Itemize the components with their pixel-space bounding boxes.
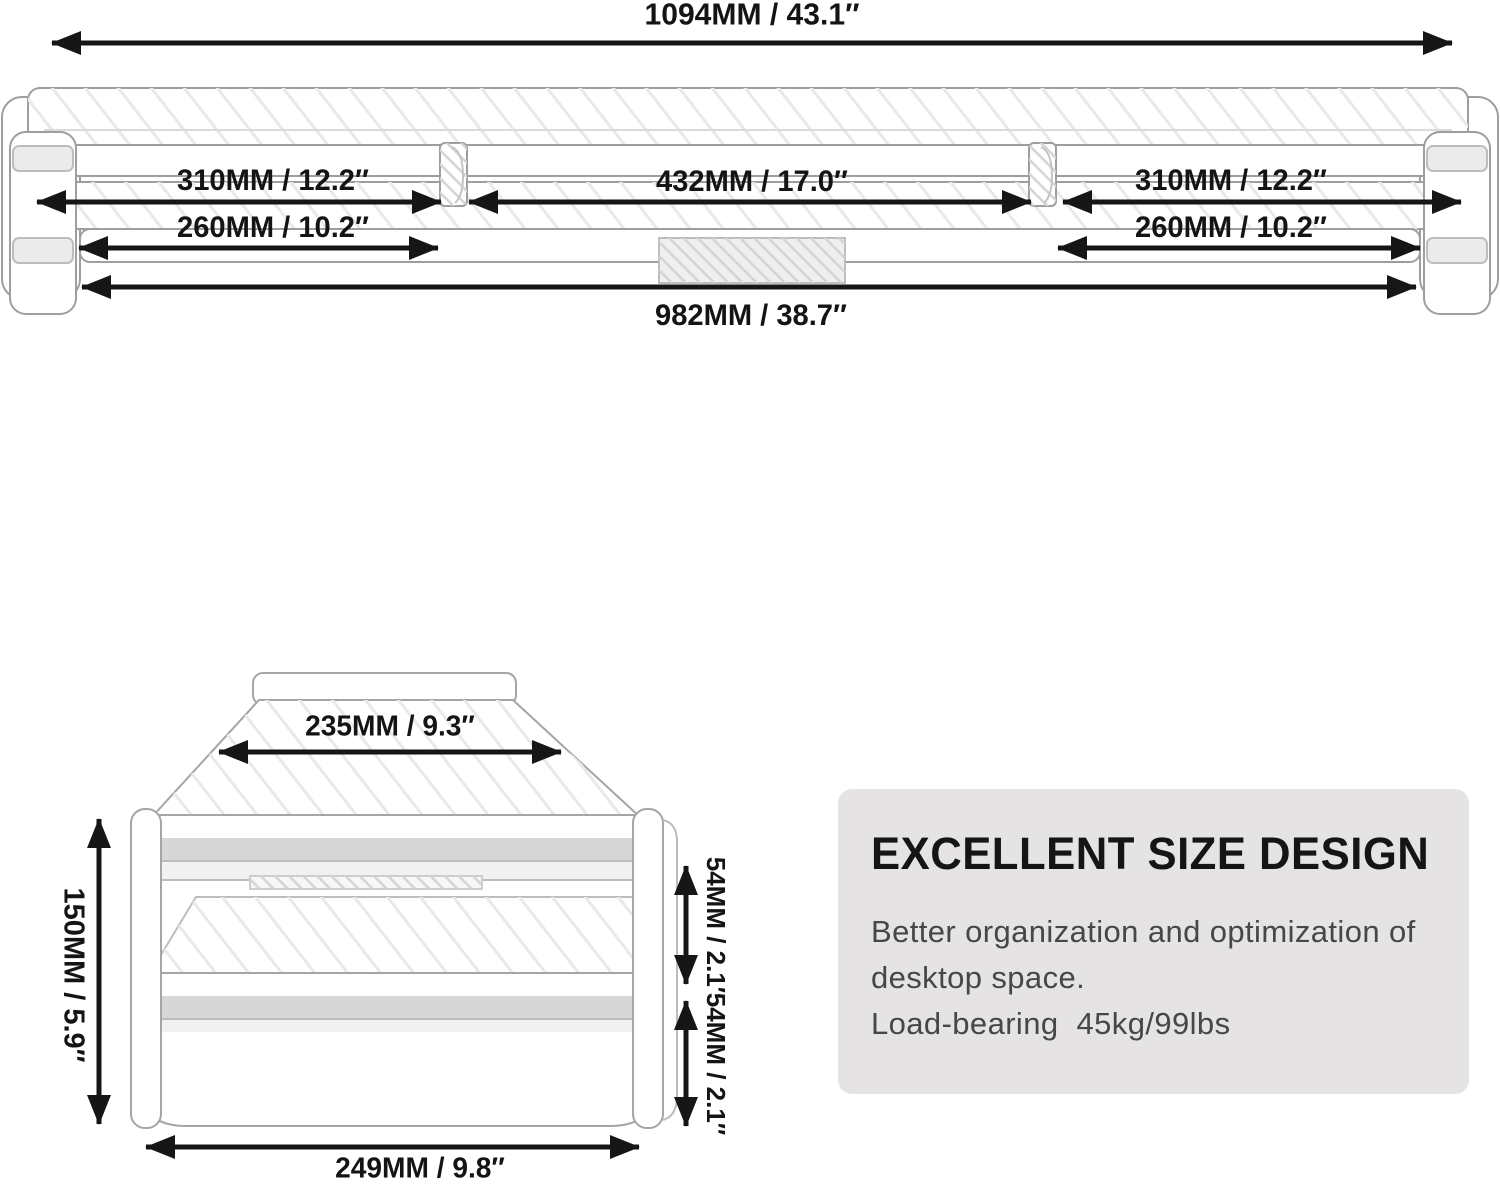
cable-box bbox=[659, 238, 845, 283]
side-left-leg bbox=[131, 809, 161, 1128]
info-card: EXCELLENT SIZE DESIGN Better organizatio… bbox=[838, 789, 1469, 1094]
info-card-body: Better organization and optimization of … bbox=[871, 909, 1416, 1047]
side-right-leg bbox=[633, 809, 663, 1128]
right-divider-peg bbox=[1029, 143, 1056, 206]
dim-label-base-depth: 249MM / 9.8″ bbox=[335, 1155, 505, 1184]
base-shell bbox=[141, 1032, 655, 1126]
info-card-title: EXCELLENT SIZE DESIGN bbox=[871, 831, 1429, 876]
dim-label-total-height: 150MM / 5.9″ bbox=[59, 887, 88, 1062]
info-card-line-2: desktop space. bbox=[871, 955, 1416, 1001]
dim-label-center-segment: 432MM / 17.0″ bbox=[656, 167, 848, 197]
dim-label-total-width: 1094MM / 43.1″ bbox=[645, 0, 860, 30]
left-divider-peg bbox=[440, 143, 467, 206]
info-card-line-3: Load-bearing 45kg/99lbs bbox=[871, 1001, 1416, 1047]
dim-label-right-segment: 310MM / 12.2″ bbox=[1135, 166, 1327, 196]
dim-label-upper-clearance: 54MM / 2.1″ bbox=[703, 857, 729, 1000]
dim-label-top-depth: 235MM / 9.3″ bbox=[305, 713, 475, 742]
dim-label-right-lower: 260MM / 10.2″ bbox=[1135, 213, 1327, 243]
dim-label-left-lower: 260MM / 10.2″ bbox=[177, 213, 369, 243]
product-dimension-diagram: 1094MM / 43.1″ 310MM / 12.2″ 432MM / 17.… bbox=[0, 0, 1500, 1191]
info-card-line-1: Better organization and optimization of bbox=[871, 909, 1416, 955]
dim-label-lower-clearance: 54MM / 2.1″ bbox=[703, 993, 729, 1136]
dim-label-left-segment: 310MM / 12.2″ bbox=[177, 166, 369, 196]
dim-label-base-width: 982MM / 38.7″ bbox=[655, 301, 847, 331]
